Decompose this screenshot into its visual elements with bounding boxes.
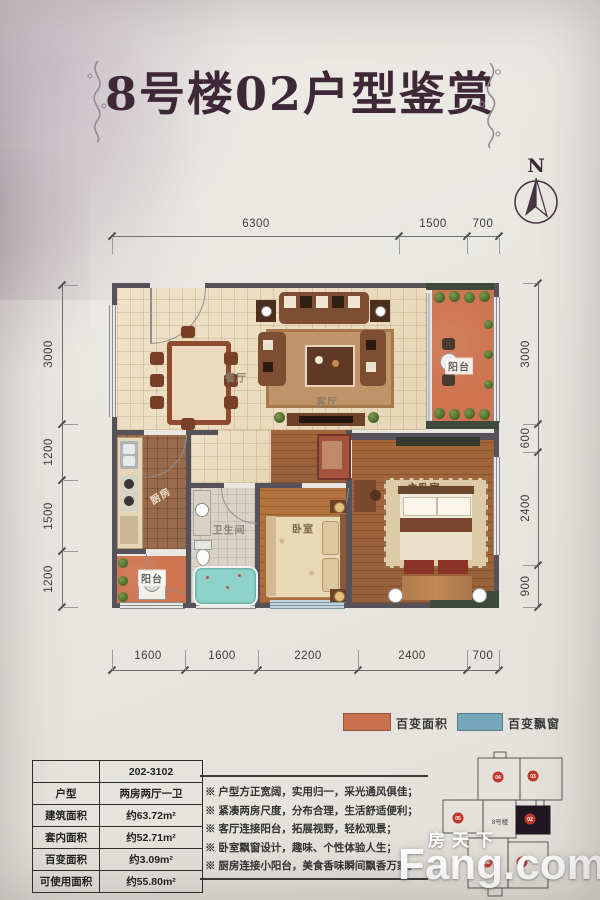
balcony-chair — [442, 338, 455, 350]
bed-headboard — [340, 514, 346, 598]
feature-item: ※ 厨房连接小阳台，美食香味瞬间飘香万家。 — [205, 857, 430, 876]
table-cell-value: 202-3102 — [100, 761, 203, 783]
nightstand-lamp — [334, 502, 345, 513]
balcony-wall — [426, 421, 499, 429]
balcony-sliding-door — [426, 293, 431, 421]
balcony-plant — [484, 320, 493, 329]
sofa-pillow — [316, 296, 328, 308]
dining-chair — [150, 352, 164, 365]
balcony-plant — [484, 350, 493, 359]
balcony-plant — [484, 380, 493, 389]
table-row: 可使用面积 约55.80m² — [33, 871, 203, 893]
feature-list: ※ 户型方正宽阔，实用归一，采光通风俱佳； ※ 紧凑两房尺度，分布合理，生活舒适… — [205, 783, 430, 876]
room-label-living-balcony: 阳台 — [445, 358, 473, 375]
potted-plant — [274, 412, 285, 423]
sofa-pillow — [366, 362, 376, 372]
dining-chair — [181, 418, 195, 430]
sofa-pillow — [366, 340, 376, 350]
wall-segment — [112, 549, 146, 554]
desk-chair — [370, 490, 381, 501]
svg-text:05: 05 — [455, 816, 461, 822]
svg-text:03: 03 — [530, 774, 536, 780]
room-label-living: 客厅 — [316, 394, 338, 409]
wall-segment — [255, 483, 302, 488]
table-row: 套内面积 约52.71m² — [33, 827, 203, 849]
stove-burner — [124, 496, 134, 506]
room-label-master-bedroom: 主卧室 — [408, 480, 441, 495]
table-row: 百变面积 约3.09m² — [33, 849, 203, 871]
room-label-bathroom: 卫生间 — [213, 522, 246, 537]
balcony-plant — [464, 408, 475, 419]
window — [120, 602, 185, 609]
master-pillow — [403, 497, 437, 516]
sofa-pillow — [263, 362, 273, 372]
table-row: 户型 两房两厅一卫 — [33, 783, 203, 805]
bed-bench — [402, 576, 472, 600]
room-label-bedroom: 卧室 — [292, 521, 314, 536]
table-cell-value: 约52.71m² — [100, 827, 203, 849]
room-label-dining: 餐厅 — [225, 370, 247, 385]
bed-pillow — [322, 558, 339, 592]
legend-swatch-flex-area — [343, 713, 391, 731]
coffee-table-dish — [332, 360, 339, 367]
divider — [200, 878, 428, 880]
sofa-pillow — [332, 296, 344, 308]
table-lamp — [375, 306, 386, 317]
dining-chair — [150, 374, 164, 387]
hall-floor-tile — [191, 430, 271, 483]
balcony-plant — [449, 291, 460, 302]
keyplan-building-label: 8号楼 — [492, 817, 509, 826]
bathtub-petal — [238, 574, 241, 577]
sofa-pillow — [263, 340, 273, 350]
balcony-plant — [118, 558, 128, 568]
feature-item: ※ 紧凑两房尺度，分布合理，生活舒适便利； — [205, 802, 430, 821]
balcony-plant — [434, 292, 445, 303]
table-cell-label — [33, 761, 100, 783]
tv — [299, 416, 353, 423]
table-row: 建筑面积 约63.72m² — [33, 805, 203, 827]
svg-text:04: 04 — [495, 775, 501, 781]
wall-segment — [112, 283, 150, 288]
table-cell-label: 建筑面积 — [33, 805, 100, 827]
window — [109, 305, 116, 417]
balcony-plant — [464, 292, 475, 303]
coffee-table-dish — [315, 356, 323, 364]
entry-door-leaf — [150, 288, 152, 343]
potted-plant — [368, 412, 379, 423]
master-tv-cabinet — [396, 437, 480, 446]
nightstand-lamp — [334, 591, 345, 602]
legend-label-flex-area: 百变面积 — [396, 715, 448, 732]
table-cell-value: 约55.80m² — [100, 871, 203, 893]
table-cell-value: 约63.72m² — [100, 805, 203, 827]
hall-rug-center — [322, 441, 342, 469]
dining-table — [167, 341, 231, 425]
bathtub-petal — [206, 576, 209, 579]
armchair — [360, 330, 386, 386]
window — [493, 297, 500, 423]
dining-chair — [224, 352, 238, 365]
balcony-chair — [442, 374, 455, 386]
master-bed-band — [400, 518, 472, 532]
dining-chair — [181, 326, 195, 338]
balcony-plant — [449, 409, 460, 420]
bed-pillow — [322, 521, 339, 555]
kitchen-cabinet — [120, 516, 138, 544]
feature-item: ※ 客厅连接阳台，拓展视野，轻松观景； — [205, 820, 430, 839]
room-label-kitchen-balcony: 阳台 — [138, 570, 166, 587]
legend-swatch-bay-window — [457, 713, 503, 731]
table-cell-value: 约3.09m² — [100, 849, 203, 871]
sink-basin — [123, 444, 135, 454]
window — [493, 457, 500, 555]
nightstand — [388, 588, 403, 603]
dining-chair — [224, 396, 238, 409]
balcony-plant — [434, 408, 445, 419]
bed-blanket-edge — [266, 516, 276, 596]
sofa-pillow — [284, 296, 296, 308]
balcony-plant — [118, 576, 128, 586]
master-cushion — [438, 560, 468, 574]
wall-segment — [112, 283, 117, 305]
sink-basin — [123, 456, 135, 466]
feature-item: ※ 卧室飘窗设计，趣味、个性体验人生； — [205, 839, 430, 858]
table-cell-label: 套内面积 — [33, 827, 100, 849]
brochure-page: 8号楼02户型鉴赏 N 6300 1500 700 1600 1600 2200… — [0, 0, 600, 900]
wall-segment — [186, 430, 191, 608]
master-cushion — [404, 560, 434, 574]
master-duvet — [400, 532, 472, 560]
bathtub-petal — [226, 586, 229, 589]
table-cell-label: 百变面积 — [33, 849, 100, 871]
sofa-pillow — [348, 296, 360, 308]
balcony-wall — [426, 283, 499, 290]
table-cell-label: 可使用面积 — [33, 871, 100, 893]
unit-info-table: 202-3102 户型 两房两厅一卫 建筑面积 约63.72m² 套内面积 约5… — [32, 760, 203, 893]
watermark-en: Fang.com — [398, 840, 600, 890]
sofa-pillow — [300, 296, 312, 308]
wall-segment — [112, 430, 144, 435]
balcony-plant — [118, 592, 128, 602]
stove-burner — [124, 479, 134, 489]
bathroom-sink — [195, 503, 209, 517]
wall-segment — [344, 603, 436, 608]
balcony-plant — [479, 291, 490, 302]
svg-text:02: 02 — [527, 817, 533, 823]
coffee-table — [305, 345, 355, 387]
nightstand — [472, 588, 487, 603]
table-cell-value: 两房两厅一卫 — [100, 783, 203, 805]
table-lamp — [261, 306, 272, 317]
dining-chair — [150, 396, 164, 409]
wall-segment — [186, 483, 224, 488]
wall-segment — [494, 283, 499, 297]
balcony-plant — [479, 409, 490, 420]
legend-label-bay-window: 百变飘窗 — [508, 715, 560, 732]
divider — [200, 775, 428, 777]
master-pillow — [437, 497, 471, 516]
feature-item: ※ 户型方正宽阔，实用归一，采光通风俱佳； — [205, 783, 430, 802]
table-cell-label: 户型 — [33, 783, 100, 805]
wall-segment — [205, 283, 430, 288]
table-row: 202-3102 — [33, 761, 203, 783]
